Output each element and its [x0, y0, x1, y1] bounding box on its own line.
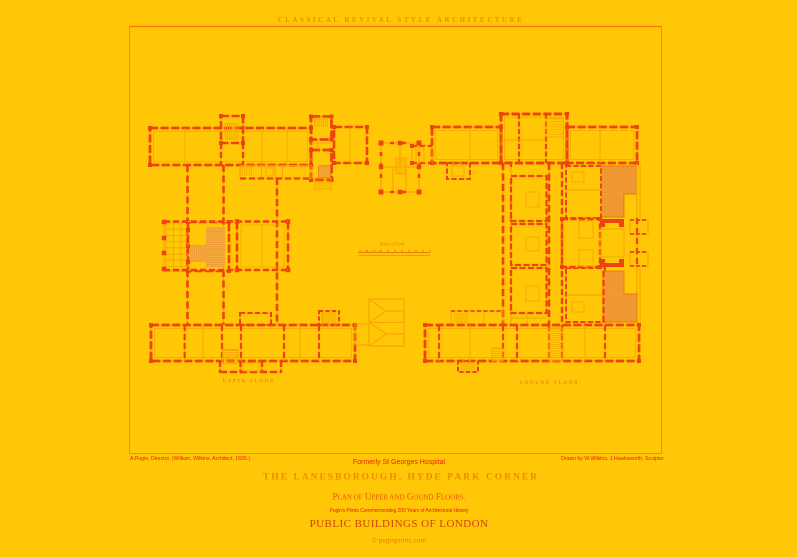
svg-text:GROUND FLOOR.: GROUND FLOOR.: [520, 381, 582, 386]
svg-text:Pugin's Prints Commemorating 2: Pugin's Prints Commemorating 200 Years o…: [330, 508, 470, 514]
svg-text:UPPER FLOOR: UPPER FLOOR: [223, 380, 275, 385]
svg-text:THE LANESBOROUGH, HYDE PARK CO: THE LANESBOROUGH, HYDE PARK CORNER: [263, 473, 539, 483]
svg-text:Scale of Feet: Scale of Feet: [379, 243, 405, 248]
svg-text:A.Pugin, Director, (William, W: A.Pugin, Director, (William, Wilkins, Ar…: [130, 456, 250, 462]
svg-text:PUBLIC BUILDINGS OF LONDON: PUBLIC BUILDINGS OF LONDON: [310, 518, 489, 530]
svg-text:Drawn by W.Wilkins. J.Hawkswor: Drawn by W.Wilkins. J.Hawksworth, Sculpt…: [561, 456, 664, 462]
svg-text:CLASSICAL REVIVAL STYLE ARCHIT: CLASSICAL REVIVAL STYLE ARCHITECTURE: [278, 17, 525, 24]
svg-text:© puginprints.com: © puginprints.com: [372, 538, 426, 545]
svg-text:Formerly St Georges Hospital: Formerly St Georges Hospital: [353, 459, 446, 466]
svg-text:PLAN OF UPPER AND GOUND FLOORS: PLAN OF UPPER AND GOUND FLOORS.: [332, 492, 465, 502]
